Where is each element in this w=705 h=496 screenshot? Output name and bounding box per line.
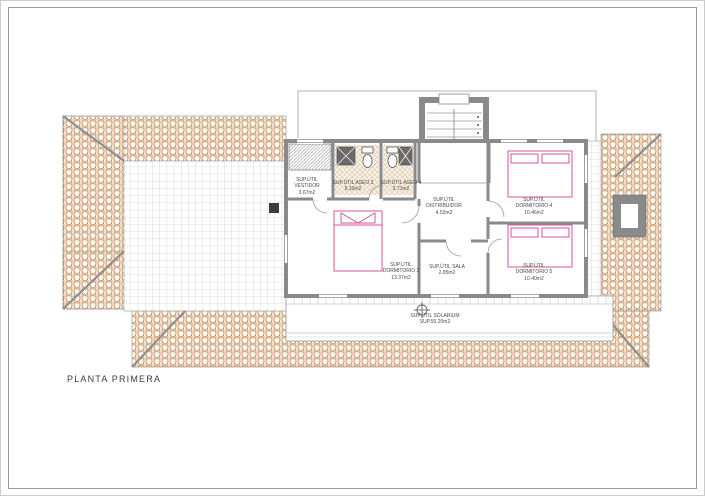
shower-icon-aseo4	[399, 147, 412, 165]
shower-icon-aseo3	[337, 147, 355, 165]
stair-window	[439, 94, 469, 104]
room-label-dormitorio-3: SUP.ÚTIL DORMITORIO 3 13.37m2	[375, 262, 427, 281]
room-label-dormitorio-4: SUP.ÚTIL DORMITORIO 4 10.46m2	[507, 197, 561, 216]
chimney	[613, 195, 646, 237]
utility-box	[269, 203, 279, 213]
plan-title: PLANTA PRIMERA	[67, 374, 161, 384]
floor-plan-drawing	[1, 1, 705, 496]
room-label-dormitorio-5: SUP.ÚTIL DORMITORIO 5 10.40m2	[507, 263, 561, 282]
room-label-distribuidor: SUP.ÚTIL DISTRIBUIDOR 4.52m2	[419, 197, 469, 216]
toilet-icon-aseo3	[362, 147, 373, 168]
room-label-aseo-3: SUP.ÚTIL ASEO 3 5.10m2	[331, 180, 375, 193]
toilet-icon-aseo4	[387, 147, 398, 168]
drawing-sheet: SUP.ÚTIL VESTIDOR 3.67m2 SUP.ÚTIL ASEO 3…	[0, 0, 705, 496]
room-label-sala: SUP.ÚTIL SALA 2.85m2	[425, 264, 469, 277]
room-label-vestidor: SUP.ÚTIL VESTIDOR 3.67m2	[287, 177, 327, 196]
wardrobe-icon	[289, 144, 331, 170]
room-label-aseo-4: SUP.ÚTIL ASEO 4 3.71m2	[379, 180, 423, 193]
room-label-solarium: SUP.ÚTIL SOLARIUM SUP.50.20m2	[399, 313, 471, 326]
